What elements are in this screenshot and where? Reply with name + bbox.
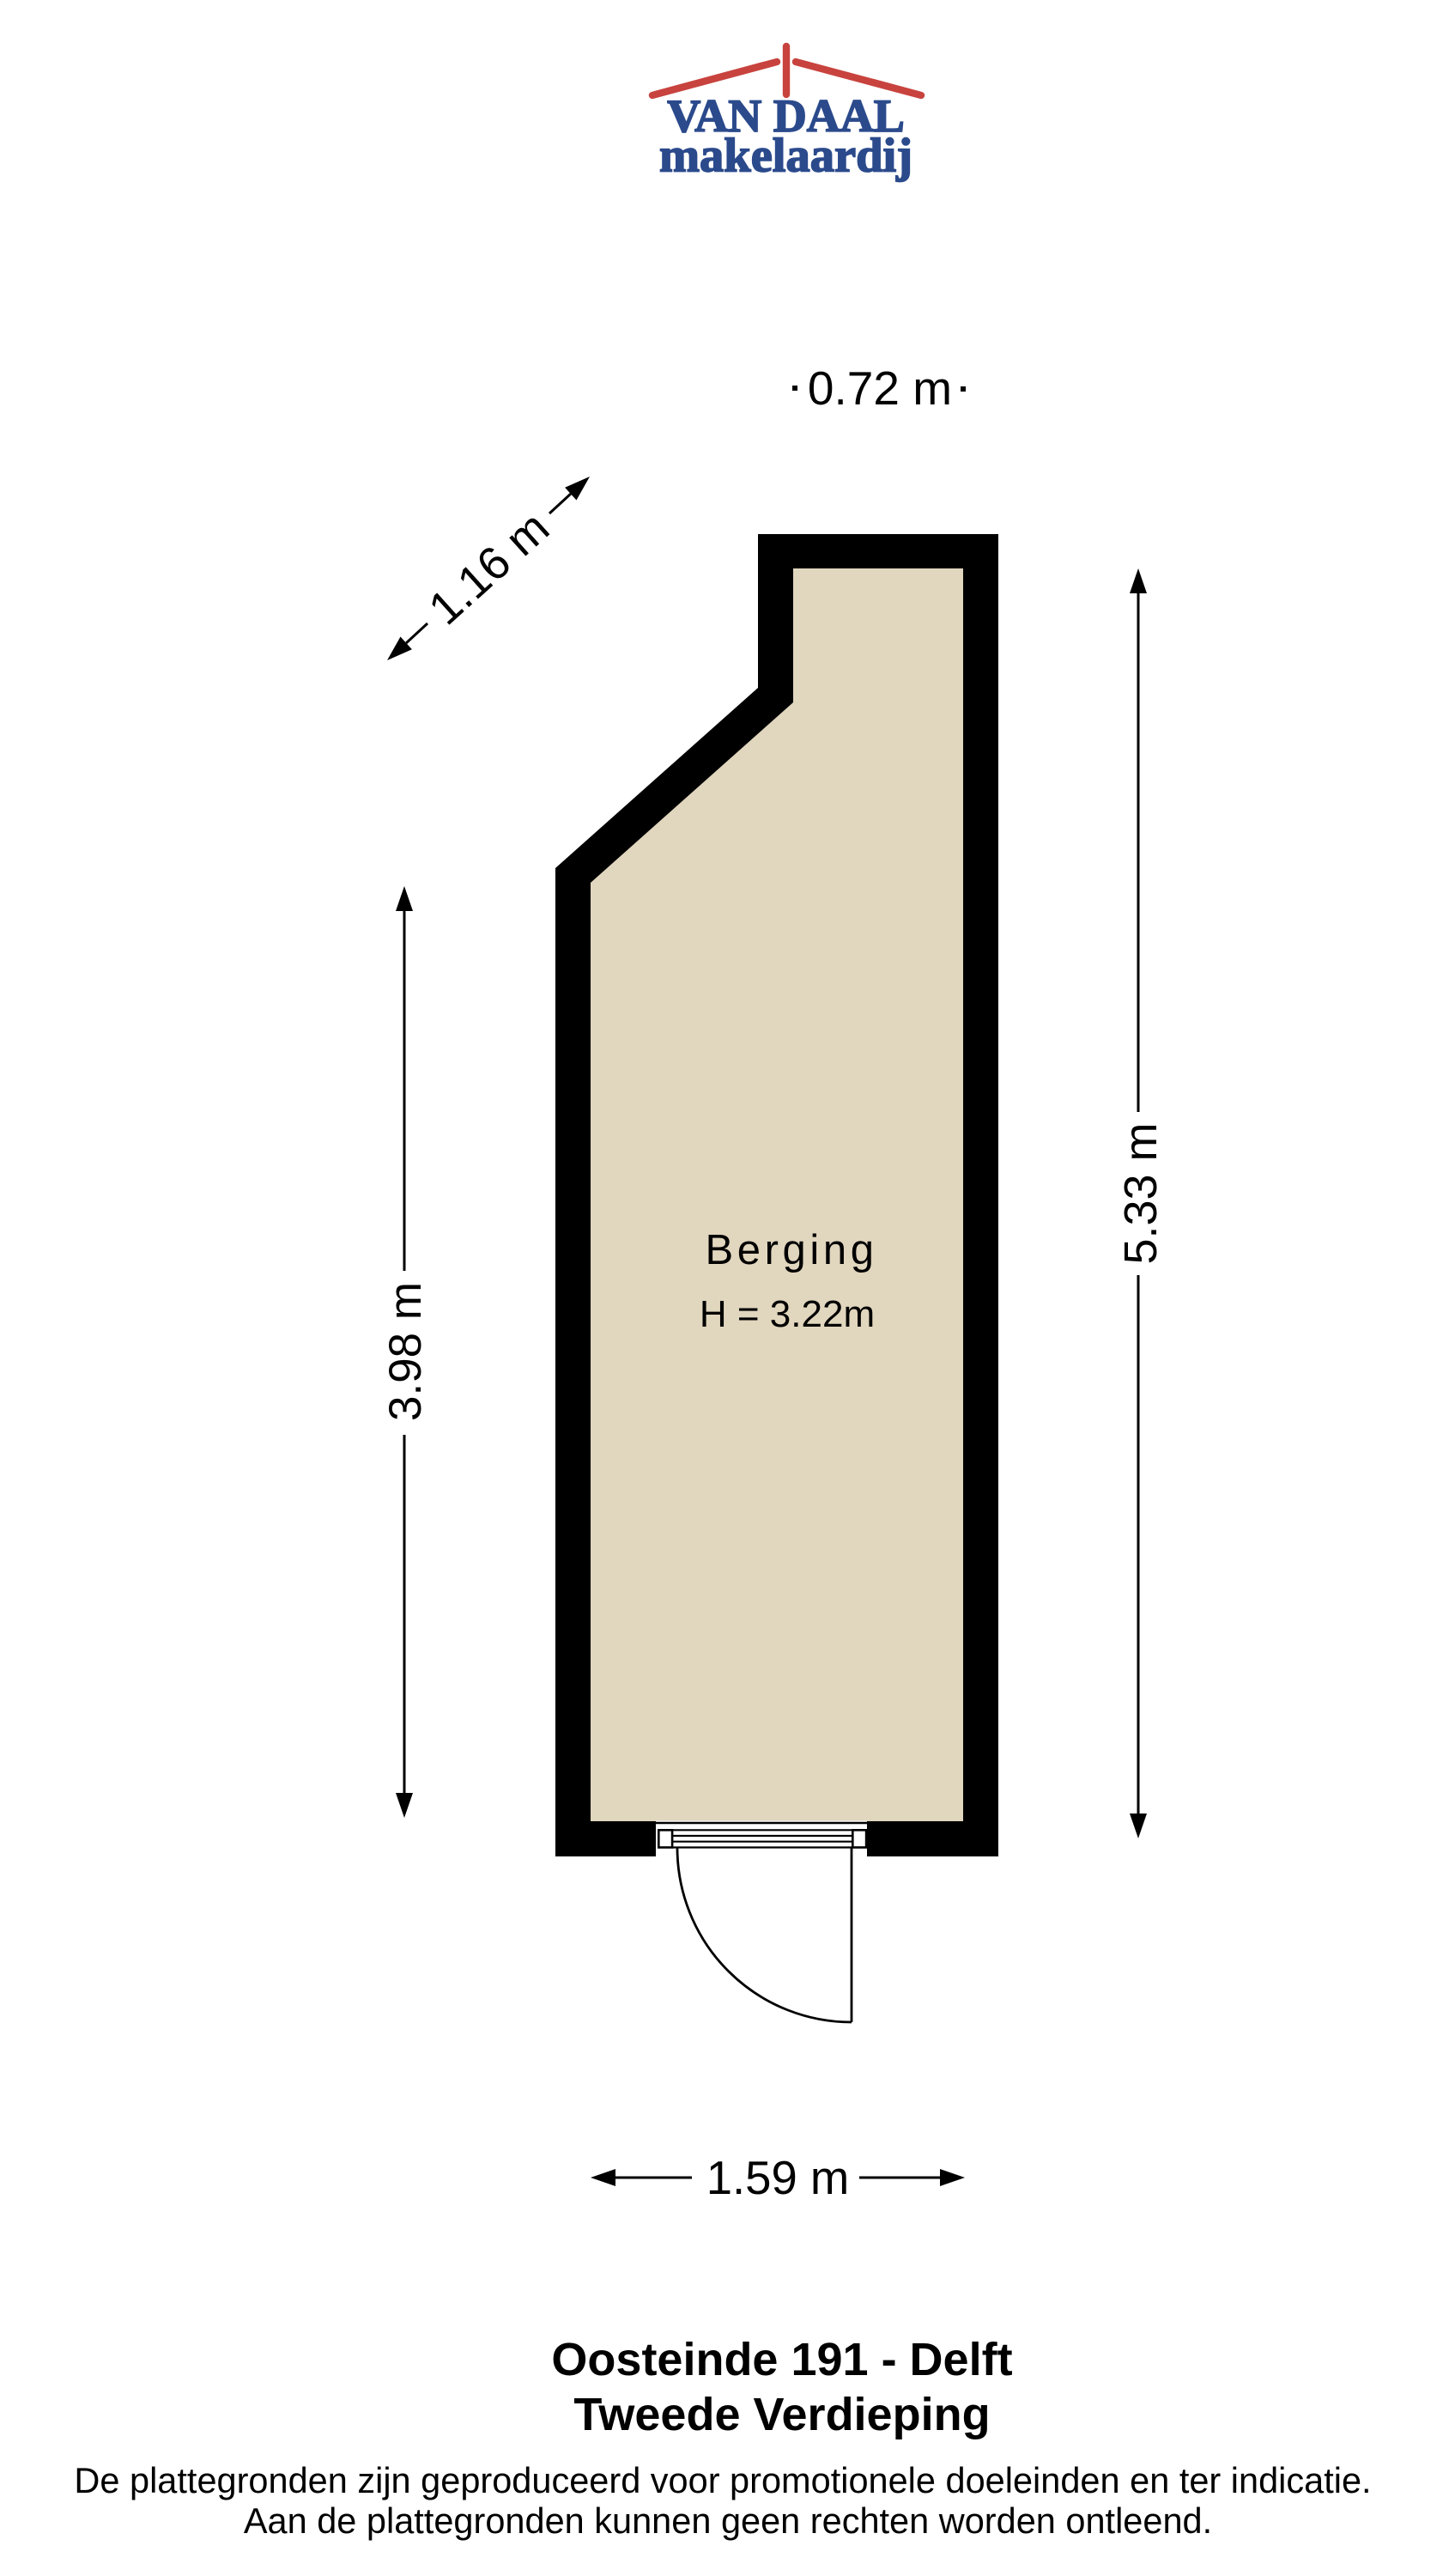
svg-text:5.33 m: 5.33 m	[1115, 1122, 1167, 1264]
svg-text:makelaardij: makelaardij	[659, 130, 912, 183]
svg-text:Aan de plattegronden kunnen ge: Aan de plattegronden kunnen geen rechten…	[244, 2500, 1212, 2541]
svg-text:De plattegronden zijn geproduc: De plattegronden zijn geproduceerd voor …	[74, 2460, 1371, 2500]
svg-text:H = 3.22m: H = 3.22m	[700, 1293, 875, 1335]
svg-text:Berging: Berging	[705, 1227, 877, 1273]
svg-text:3.98 m: 3.98 m	[380, 1282, 431, 1421]
svg-text:0.72 m: 0.72 m	[808, 361, 952, 415]
svg-text:1.16 m: 1.16 m	[419, 501, 559, 635]
svg-text:Oosteinde 191 - Delft: Oosteinde 191 - Delft	[551, 2334, 1012, 2385]
svg-text:Tweede Verdieping: Tweede Verdieping	[573, 2389, 990, 2440]
svg-text:1.59 m: 1.59 m	[706, 2152, 850, 2204]
